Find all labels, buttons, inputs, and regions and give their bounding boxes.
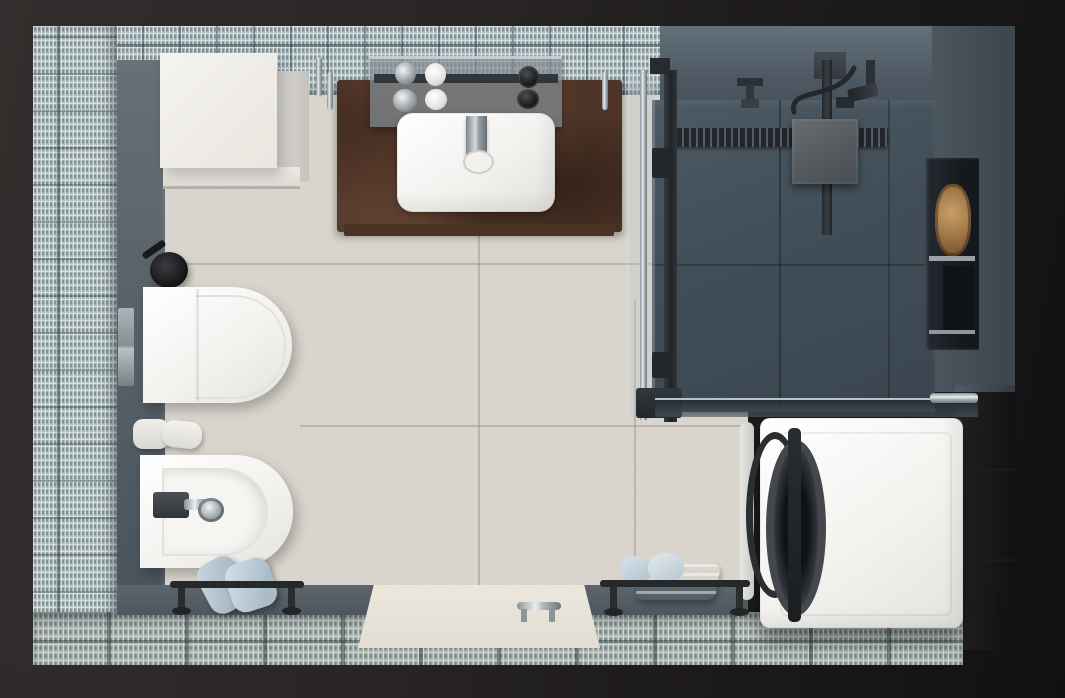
shower-mount-foot <box>741 99 759 108</box>
partition-hinge-bottom <box>652 352 669 378</box>
floor-grout-h1 <box>165 263 660 265</box>
wall-hook <box>316 57 322 97</box>
glass-shelf-bracket <box>930 393 978 403</box>
cabinet-side-face <box>277 71 309 181</box>
shower-valve <box>836 97 854 108</box>
door-handle-post-2 <box>549 609 555 622</box>
left-wall-mosaic <box>33 26 117 665</box>
niche-shelf-edge2 <box>929 330 975 334</box>
bottle-black <box>518 66 539 88</box>
rain-shower-head <box>792 119 858 184</box>
partition-top-bracket <box>650 58 670 74</box>
toilet-brush <box>150 252 188 288</box>
soap-dispenser-chrome-2 <box>393 89 417 112</box>
towel-fold-bump-2 <box>648 553 684 581</box>
cabinet-top <box>160 53 277 168</box>
storage-cabinet <box>160 53 310 191</box>
towel-rail-left <box>170 552 304 618</box>
bidet-spout <box>198 498 224 522</box>
paper-roll-2 <box>161 419 204 450</box>
rail-bar <box>170 581 304 588</box>
door-handle-post-1 <box>521 609 527 622</box>
bottle-black-2 <box>517 89 539 109</box>
niche-dark-box <box>943 266 974 330</box>
wall-niche <box>925 158 979 350</box>
left-wall-seam <box>57 26 60 665</box>
flush-plate <box>118 308 134 386</box>
top-wall-seam <box>33 44 668 47</box>
floor-grout-h2 <box>300 425 748 427</box>
rail2-foot-1 <box>604 608 623 616</box>
washer-door-hinge-strip <box>788 428 801 622</box>
towel-bar-right <box>602 72 608 110</box>
basin-drain <box>463 150 494 174</box>
shower-grout-v2 <box>888 100 890 412</box>
shower-grout-h1 <box>652 264 935 266</box>
right-wall-tiles <box>955 385 1015 650</box>
bathroom-render <box>0 0 1065 698</box>
rail2-foot-2 <box>730 608 749 616</box>
towel-rail-right <box>600 548 752 618</box>
entry-door <box>358 585 600 648</box>
niche-basket <box>935 184 971 256</box>
partition-hinge-top <box>652 148 669 178</box>
toilet-lid-seam <box>196 289 199 401</box>
washing-machine <box>740 418 963 628</box>
towel-bar-left <box>327 72 333 110</box>
rail-foot-2 <box>282 607 301 615</box>
vanity-front-lip <box>344 224 614 236</box>
niche-shelf-edge <box>929 256 975 261</box>
tumbler-white-2 <box>425 89 447 110</box>
partition-chrome-rail <box>640 70 647 420</box>
tumbler-white <box>425 63 446 86</box>
cabinet-bottom-seam <box>163 186 300 189</box>
rail-bar-2 <box>600 580 750 587</box>
rail-foot-1 <box>172 607 191 615</box>
soap-dispenser-chrome <box>395 62 416 85</box>
